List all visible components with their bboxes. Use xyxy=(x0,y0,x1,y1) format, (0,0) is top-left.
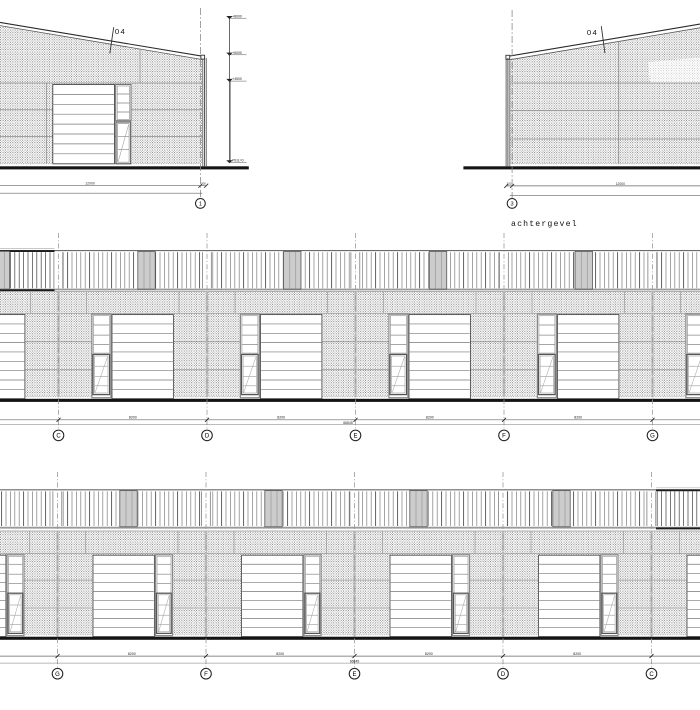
svg-text:G: G xyxy=(55,672,60,678)
svg-text:200: 200 xyxy=(507,182,512,186)
svg-text:8200: 8200 xyxy=(276,652,284,656)
svg-text:66845: 66845 xyxy=(343,421,353,425)
svg-text:C: C xyxy=(56,434,61,440)
svg-text:achtergevel: achtergevel xyxy=(511,219,578,229)
svg-text:1: 1 xyxy=(199,202,202,208)
svg-text:66845: 66845 xyxy=(350,659,360,663)
svg-text:3: 3 xyxy=(511,202,514,208)
svg-text:G: G xyxy=(650,434,655,440)
svg-text:+8000: +8000 xyxy=(232,14,242,18)
svg-text:F: F xyxy=(204,672,208,678)
svg-text:C: C xyxy=(649,672,654,678)
svg-text:+4500: +4500 xyxy=(232,77,242,81)
svg-text:12000: 12000 xyxy=(616,182,626,186)
svg-text:04: 04 xyxy=(115,27,126,36)
svg-text:E: E xyxy=(352,672,356,678)
svg-text:8200: 8200 xyxy=(574,416,582,420)
svg-text:200: 200 xyxy=(201,181,206,185)
svg-text:F: F xyxy=(502,434,506,440)
svg-text:PEIL=0: PEIL=0 xyxy=(232,159,243,163)
svg-text:8200: 8200 xyxy=(277,416,285,420)
svg-text:8200: 8200 xyxy=(426,416,434,420)
svg-text:12000: 12000 xyxy=(85,182,95,186)
svg-text:8200: 8200 xyxy=(129,416,137,420)
svg-text:8200: 8200 xyxy=(128,652,136,656)
svg-text:D: D xyxy=(205,434,210,440)
svg-text:+6000: +6000 xyxy=(232,51,242,55)
svg-text:8200: 8200 xyxy=(425,652,433,656)
svg-text:04: 04 xyxy=(587,28,598,37)
svg-text:8200: 8200 xyxy=(573,652,581,656)
svg-text:D: D xyxy=(501,672,506,678)
svg-text:E: E xyxy=(353,434,357,440)
